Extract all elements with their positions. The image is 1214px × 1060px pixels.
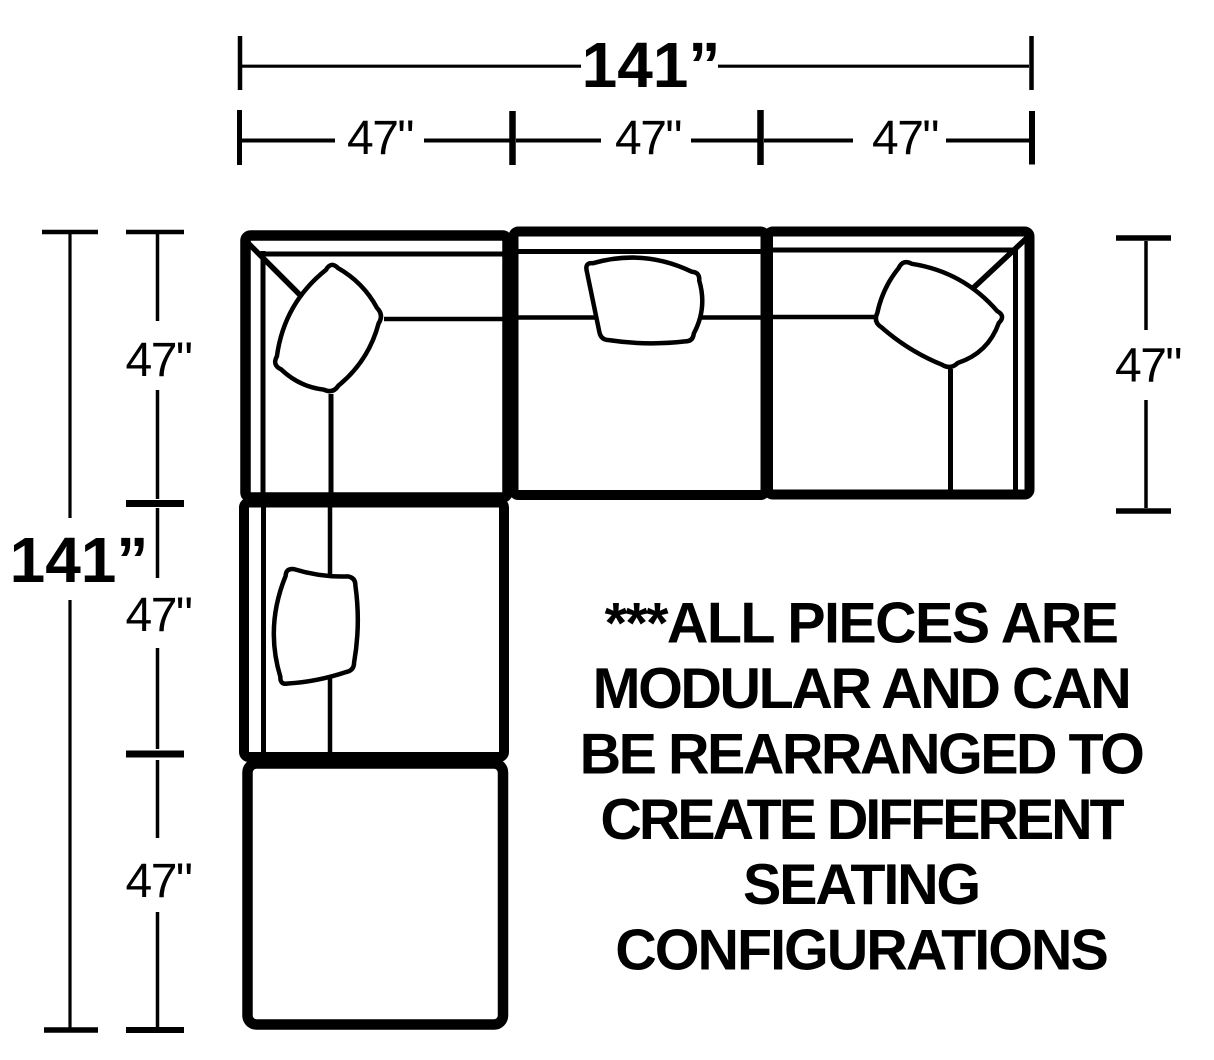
svg-text:***ALL PIECES ARE: ***ALL PIECES ARE (605, 592, 1118, 656)
svg-text:SEATING: SEATING (743, 853, 979, 917)
svg-text:141”: 141” (582, 29, 721, 101)
svg-text:141”: 141” (10, 524, 149, 596)
svg-text:47": 47" (126, 855, 192, 908)
svg-text:47": 47" (872, 112, 938, 165)
svg-text:47": 47" (347, 112, 413, 165)
svg-text:BE REARRANGED TO: BE REARRANGED TO (580, 723, 1144, 787)
svg-text:CREATE DIFFERENT: CREATE DIFFERENT (600, 788, 1124, 852)
svg-text:CONFIGURATIONS: CONFIGURATIONS (615, 918, 1107, 982)
svg-text:47": 47" (126, 589, 192, 642)
svg-text:47": 47" (1115, 340, 1181, 393)
svg-text:MODULAR AND CAN: MODULAR AND CAN (593, 657, 1130, 721)
svg-text:47": 47" (126, 334, 192, 387)
svg-text:47": 47" (615, 112, 681, 165)
